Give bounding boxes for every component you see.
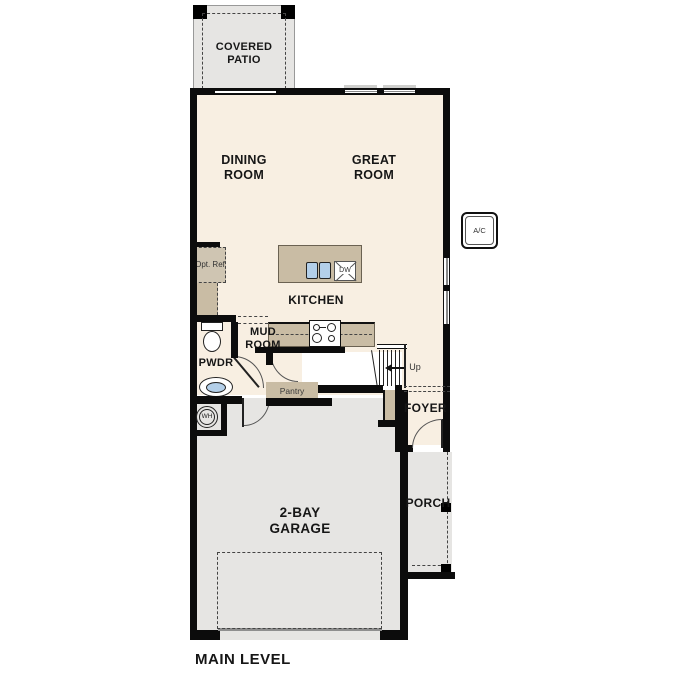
foyer-label: FOYER (404, 401, 446, 415)
wall-foyer-bottom (395, 445, 413, 452)
garage-label: 2-BAY GARAGE (255, 505, 345, 537)
porch-label: PORCH (404, 496, 452, 510)
dining-room-label: DINING ROOM (209, 153, 279, 183)
covered-patio-label: COVERED PATIO (203, 41, 285, 67)
stair-railing (377, 344, 407, 349)
foyer-ceiling-break (404, 391, 450, 392)
porch-floor (408, 452, 452, 572)
stairs-up-label: Up (406, 362, 424, 372)
dishwasher-label: DW (336, 267, 354, 274)
ac-unit: A/C (461, 212, 498, 249)
wall (190, 396, 242, 404)
window-icon (443, 291, 450, 324)
floor-plan: COVERED PATIO DW KITCHEN Opt. Ref DINING… (0, 0, 687, 687)
wall (318, 385, 383, 393)
wall (190, 430, 227, 436)
wall-garage-right (400, 390, 408, 640)
dishwasher-icon: DW (334, 261, 356, 281)
plan-title: MAIN LEVEL (195, 651, 335, 669)
sink-icon (306, 262, 318, 279)
wall-porch-bottom (406, 572, 455, 579)
stove-icon (309, 320, 341, 347)
wall-garage-bottom (190, 630, 220, 640)
stair-tread (379, 350, 380, 386)
toilet-icon (201, 322, 223, 331)
patio-slider-door (215, 90, 276, 94)
wall (221, 404, 227, 432)
wall-garage-top (266, 398, 332, 406)
powder-room-label: PWDR (194, 357, 238, 370)
cased-opening (238, 316, 268, 317)
sink-icon (319, 262, 331, 279)
garage-door-outline (217, 552, 382, 629)
wall (255, 347, 345, 353)
wall (190, 315, 236, 322)
pantry-label: Pantry (268, 386, 316, 396)
kitchen-label: KITCHEN (286, 293, 346, 307)
window-sill (383, 85, 416, 88)
wall-left (190, 88, 197, 640)
toilet-bowl-icon (203, 331, 221, 352)
wall (231, 322, 238, 358)
up-arrow-head-icon (385, 364, 392, 372)
window-icon (384, 89, 415, 94)
up-arrow-line (391, 367, 404, 369)
sink-basin-icon (206, 382, 226, 393)
ac-label: A/C (473, 226, 486, 235)
window-sill (344, 85, 377, 88)
window-icon (443, 258, 450, 285)
opt-ref-label: Opt. Ref (195, 260, 225, 270)
optional-refrigerator: Opt. Ref (194, 247, 226, 283)
great-room-label: GREAT ROOM (339, 153, 409, 183)
window-icon (345, 89, 377, 94)
foyer-ceiling-break (404, 386, 450, 387)
cased-opening (238, 323, 268, 324)
water-heater-label: WH (196, 413, 218, 420)
wall-garage-bottom (380, 630, 408, 640)
